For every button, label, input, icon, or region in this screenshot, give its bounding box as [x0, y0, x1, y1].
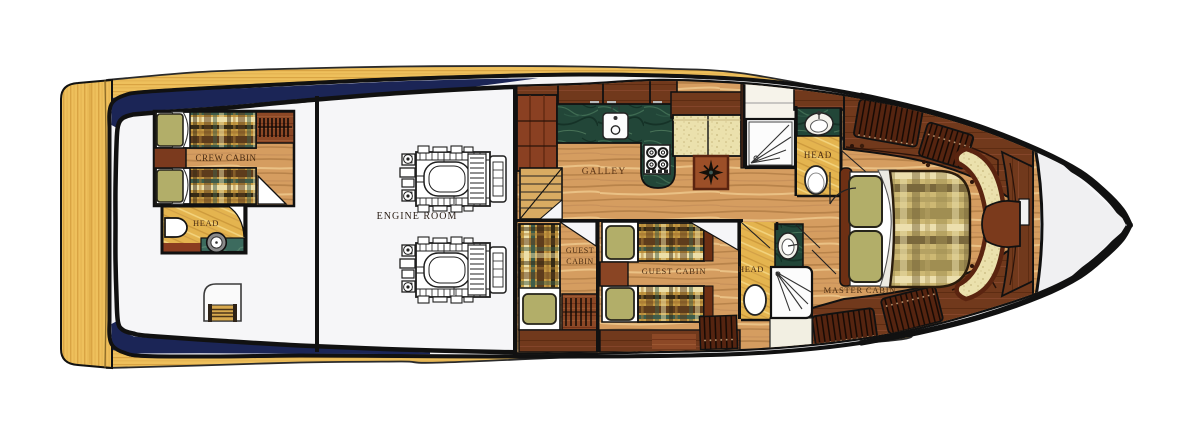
svg-text:CREW CABIN: CREW CABIN	[195, 153, 256, 163]
svg-text:GUEST CABIN: GUEST CABIN	[642, 266, 707, 276]
svg-text:GUEST: GUEST	[566, 246, 594, 255]
svg-text:MASTER CABIN: MASTER CABIN	[824, 285, 897, 295]
svg-text:GALLEY: GALLEY	[582, 167, 627, 177]
svg-text:CABIN: CABIN	[566, 257, 593, 266]
svg-text:HEAD: HEAD	[738, 264, 764, 274]
svg-text:HEAD: HEAD	[804, 150, 832, 160]
svg-text:HEAD: HEAD	[193, 218, 219, 228]
svg-text:ENGINE ROOM: ENGINE ROOM	[377, 211, 458, 222]
